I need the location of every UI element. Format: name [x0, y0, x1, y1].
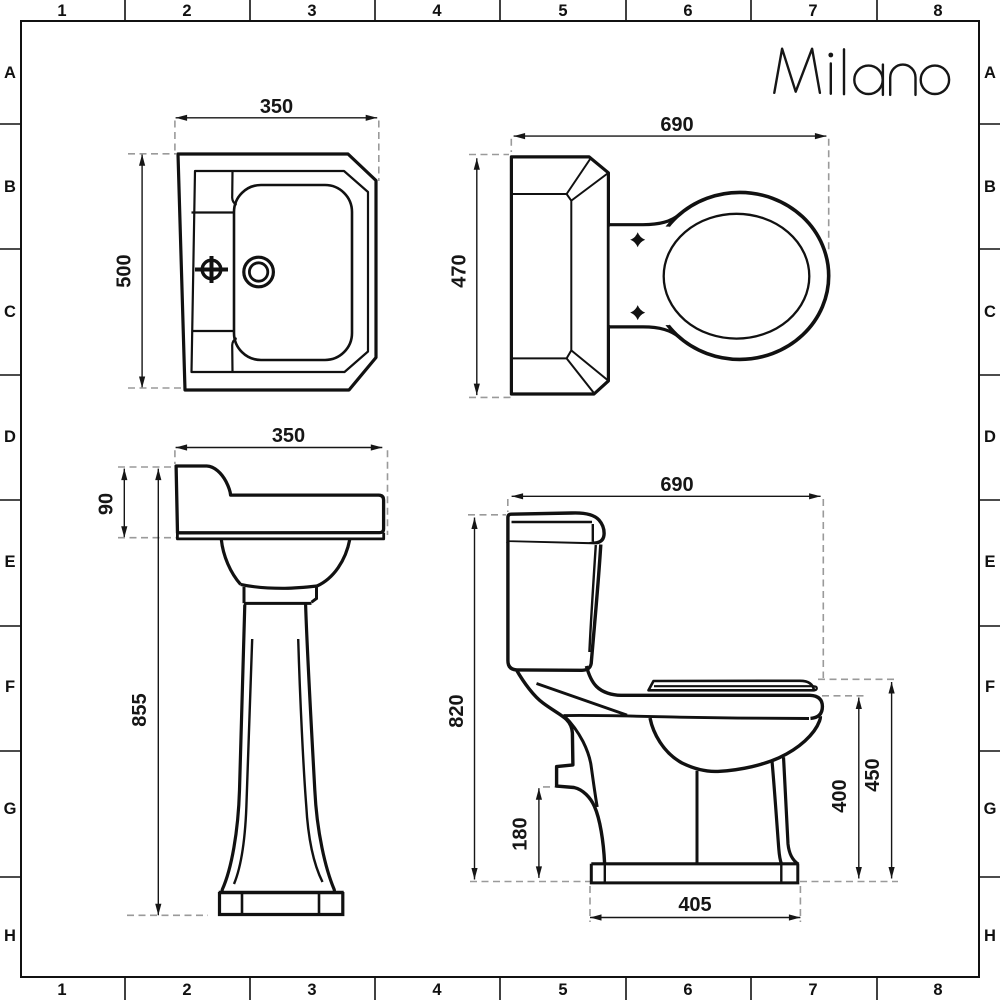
svg-text:90: 90	[96, 493, 118, 515]
svg-text:F: F	[5, 678, 15, 696]
svg-text:400: 400	[829, 779, 851, 812]
svg-text:405: 405	[678, 894, 711, 916]
svg-text:820: 820	[446, 694, 468, 727]
svg-text:1: 1	[57, 2, 66, 20]
svg-text:B: B	[984, 178, 996, 196]
svg-text:350: 350	[260, 96, 293, 118]
svg-text:6: 6	[683, 2, 692, 20]
svg-text:690: 690	[660, 114, 693, 136]
svg-text:450: 450	[862, 758, 884, 791]
svg-text:6: 6	[683, 981, 692, 999]
svg-text:4: 4	[432, 2, 442, 20]
svg-text:690: 690	[660, 474, 693, 496]
svg-text:180: 180	[510, 817, 532, 850]
svg-text:4: 4	[432, 981, 442, 999]
svg-text:A: A	[4, 64, 16, 82]
svg-text:5: 5	[558, 981, 567, 999]
svg-text:2: 2	[182, 2, 191, 20]
svg-text:3: 3	[307, 2, 316, 20]
svg-text:500: 500	[114, 254, 136, 287]
svg-text:3: 3	[307, 981, 316, 999]
svg-text:D: D	[4, 428, 16, 446]
svg-text:D: D	[984, 428, 996, 446]
svg-text:B: B	[4, 178, 16, 196]
svg-text:A: A	[984, 64, 996, 82]
svg-text:F: F	[985, 678, 995, 696]
svg-text:8: 8	[933, 2, 942, 20]
svg-text:350: 350	[272, 425, 305, 447]
svg-text:E: E	[984, 553, 995, 571]
svg-text:7: 7	[808, 981, 817, 999]
svg-text:H: H	[984, 927, 996, 945]
svg-text:G: G	[984, 800, 997, 818]
svg-text:8: 8	[933, 981, 942, 999]
svg-text:470: 470	[449, 254, 471, 287]
svg-text:1: 1	[57, 981, 66, 999]
svg-text:H: H	[4, 927, 16, 945]
svg-text:E: E	[4, 553, 15, 571]
svg-text:7: 7	[808, 2, 817, 20]
svg-text:2: 2	[182, 981, 191, 999]
svg-text:G: G	[4, 800, 17, 818]
svg-text:C: C	[984, 303, 996, 321]
svg-text:C: C	[4, 303, 16, 321]
svg-text:5: 5	[558, 2, 567, 20]
svg-text:855: 855	[129, 693, 151, 726]
